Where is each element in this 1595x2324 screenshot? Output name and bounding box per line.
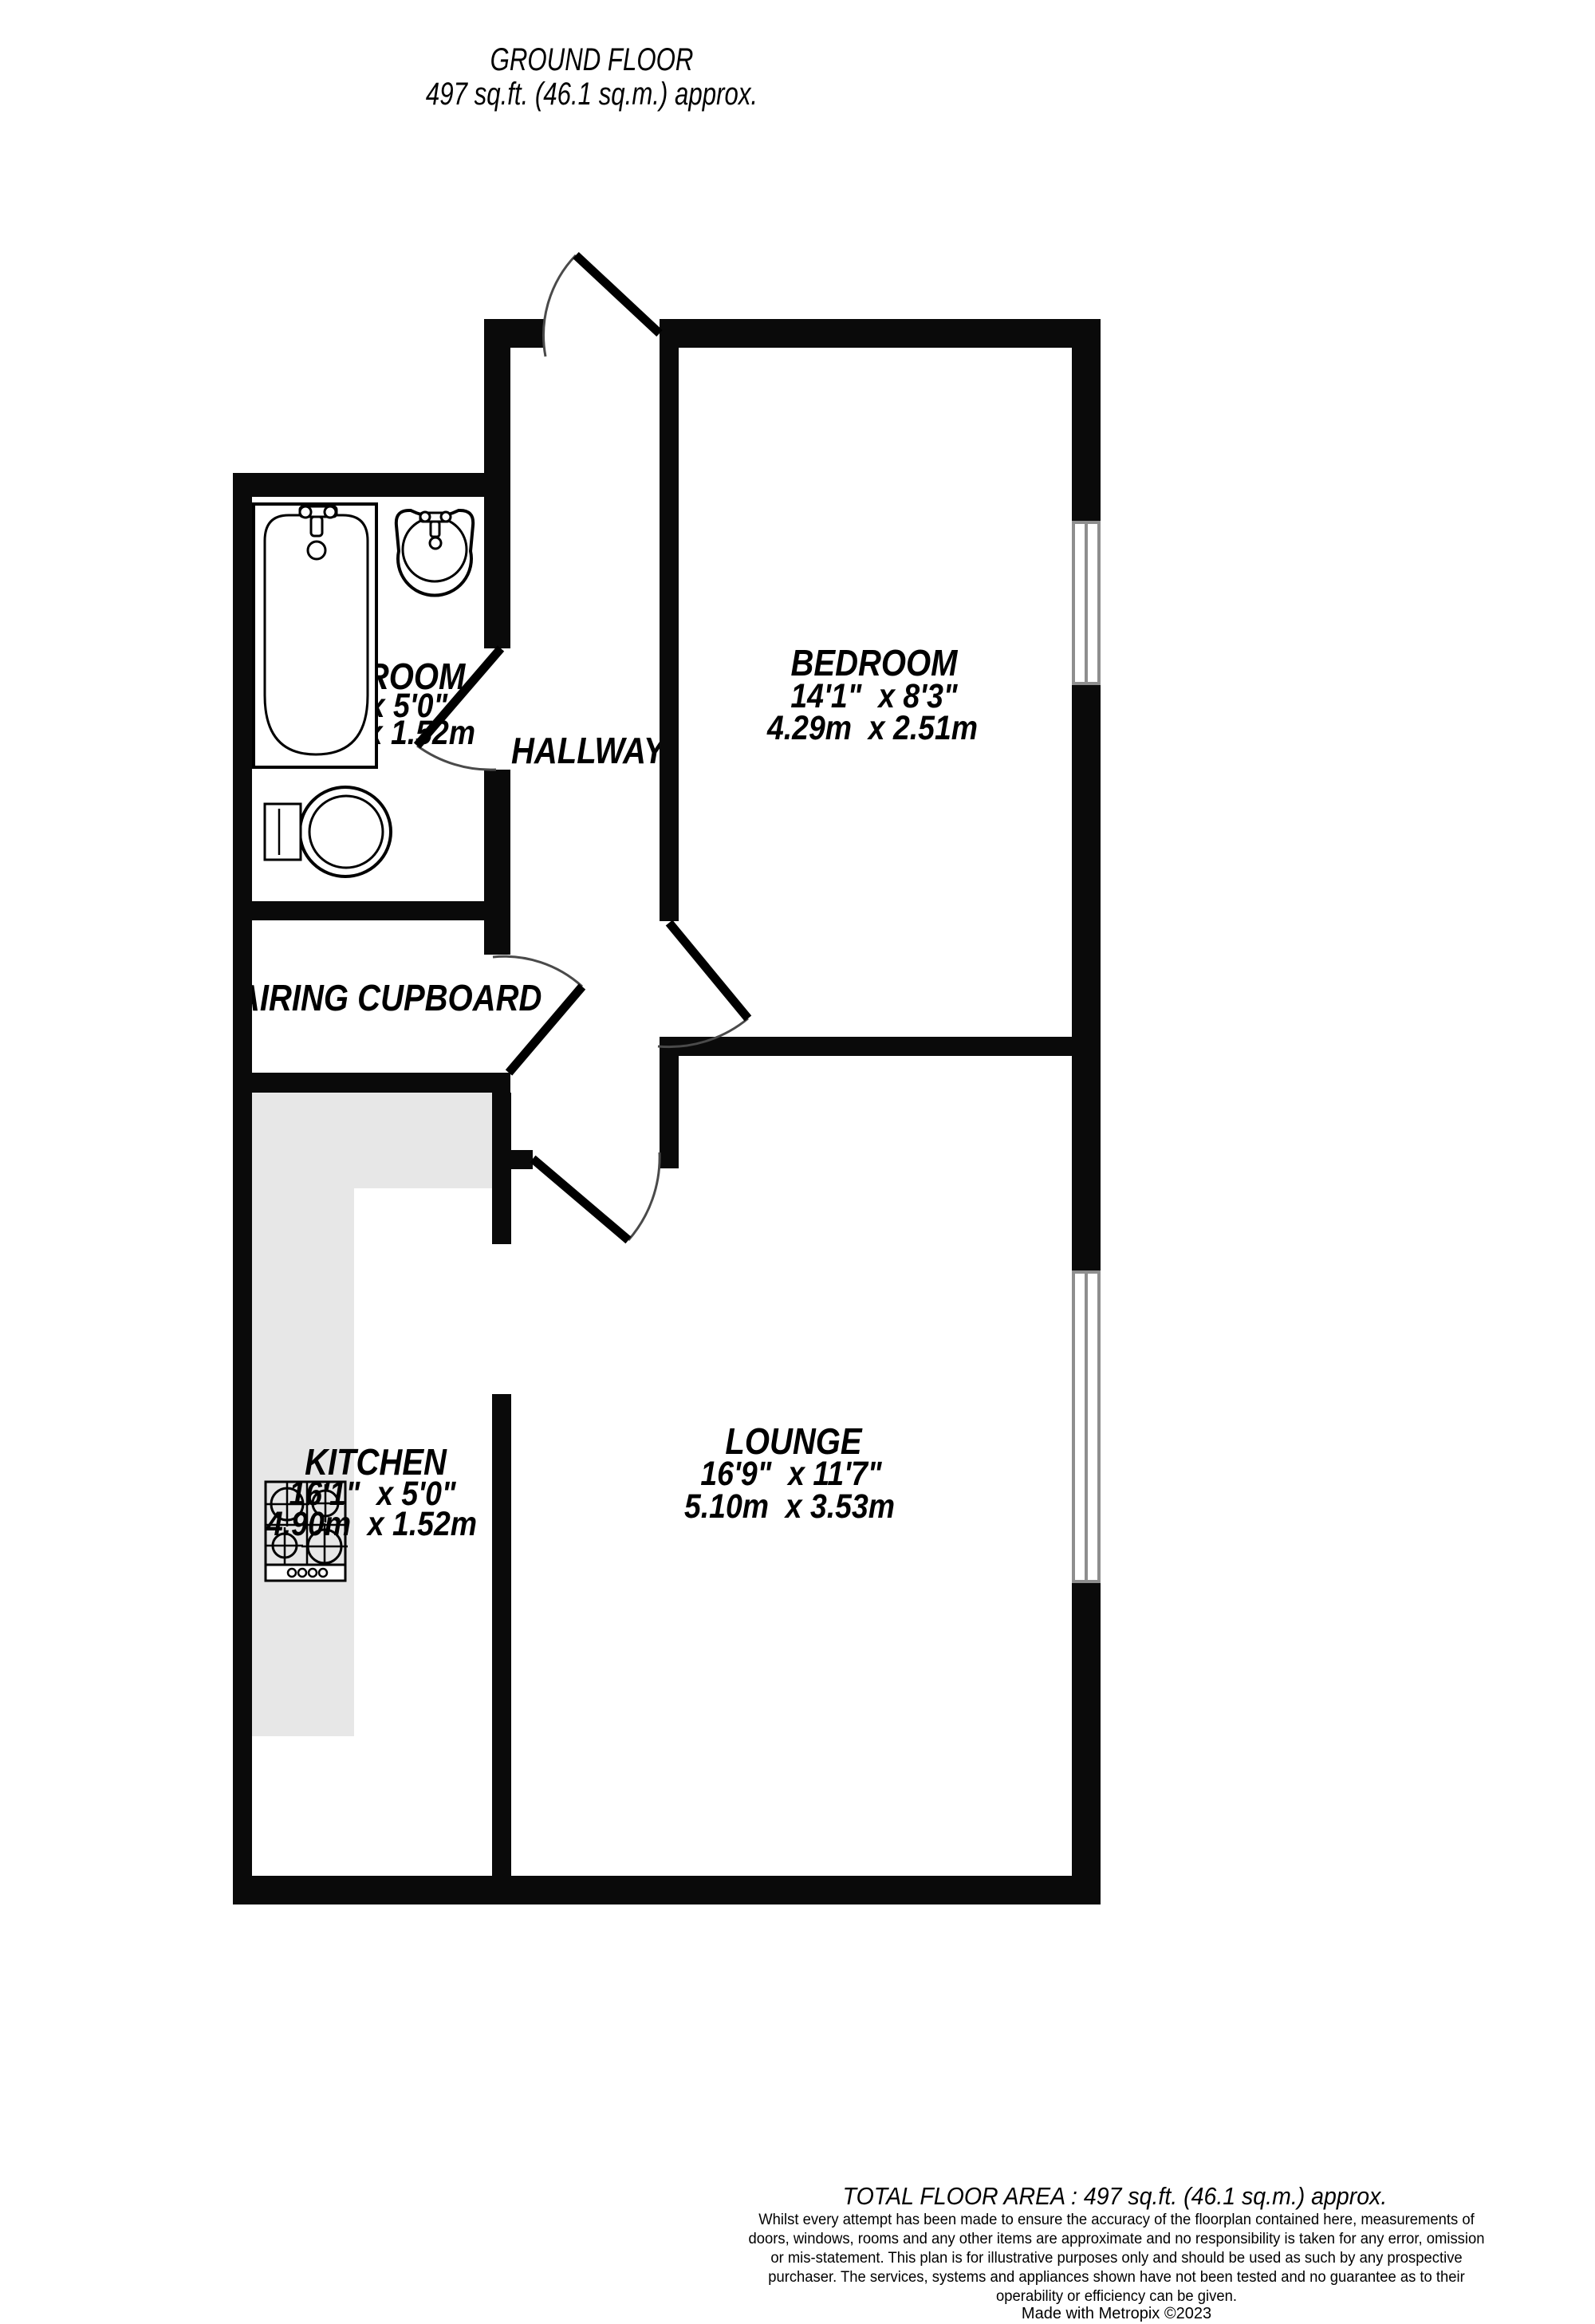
floorplan-drawing: BATHROOM 8'5" x 5'0" 2.56m x 1.52m HALLW… bbox=[0, 0, 1595, 2324]
bedroom-metric: 4.29m x 2.51m bbox=[766, 709, 978, 747]
disclaimer-text: Whilst every attempt has been made to en… bbox=[745, 2211, 1487, 2306]
toilet-icon bbox=[265, 787, 391, 876]
metropix-credit: Made with Metropix ©2023 bbox=[734, 2305, 1499, 2323]
lounge-door bbox=[533, 1152, 660, 1240]
bedroom-door bbox=[658, 923, 748, 1047]
bathtub-icon bbox=[254, 504, 376, 767]
kitchen-counter bbox=[252, 1092, 492, 1736]
hallway-label: HALLWAY bbox=[511, 731, 668, 771]
entrance-door bbox=[544, 255, 660, 356]
lounge-metric: 5.10m x 3.53m bbox=[684, 1487, 895, 1526]
kitchen-metric: 4.90m x 1.52m bbox=[266, 1505, 477, 1543]
sink-icon bbox=[396, 510, 473, 596]
airing-cupboard-label: AIRING CUPBOARD bbox=[236, 978, 542, 1018]
bedroom-window bbox=[1072, 521, 1101, 685]
total-floor-area: TOTAL FLOOR AREA : 497 sq.ft. (46.1 sq.m… bbox=[748, 2182, 1482, 2211]
lounge-window bbox=[1072, 1270, 1101, 1583]
floorplan-page: GROUND FLOOR 497 sq.ft. (46.1 sq.m.) app… bbox=[0, 0, 1595, 2324]
